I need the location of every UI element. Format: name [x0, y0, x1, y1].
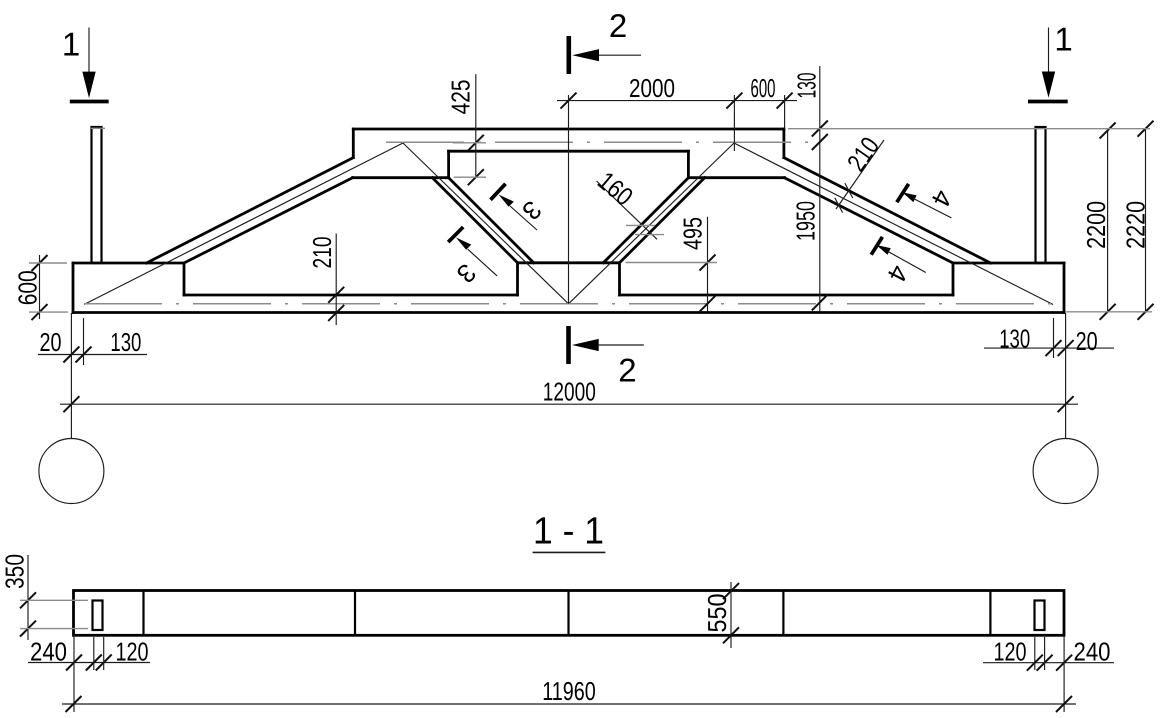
svg-text:120: 120 — [116, 637, 149, 667]
svg-text:550: 550 — [702, 594, 732, 633]
svg-text:130: 130 — [791, 73, 821, 99]
svg-text:1950: 1950 — [791, 201, 821, 241]
svg-text:2220: 2220 — [1121, 201, 1151, 249]
svg-text:20: 20 — [40, 327, 62, 357]
svg-text:210: 210 — [307, 237, 337, 269]
svg-text:120: 120 — [994, 637, 1027, 667]
svg-text:1: 1 — [1054, 21, 1072, 58]
svg-text:495: 495 — [678, 217, 708, 250]
svg-text:350: 350 — [0, 554, 29, 589]
svg-text:130: 130 — [999, 324, 1030, 354]
svg-text:600: 600 — [751, 73, 776, 103]
svg-text:2200: 2200 — [1081, 201, 1111, 249]
svg-text:130: 130 — [110, 327, 141, 357]
svg-text:12000: 12000 — [543, 376, 596, 406]
svg-text:240: 240 — [1074, 637, 1111, 667]
svg-text:20: 20 — [1076, 326, 1098, 356]
svg-text:2: 2 — [609, 7, 627, 44]
svg-text:425: 425 — [446, 79, 476, 114]
svg-text:240: 240 — [30, 637, 67, 667]
svg-text:1: 1 — [62, 25, 80, 62]
svg-text:600: 600 — [13, 270, 43, 305]
svg-text:1 - 1: 1 - 1 — [533, 511, 604, 553]
svg-text:2000: 2000 — [629, 73, 675, 103]
svg-text:11960: 11960 — [542, 676, 596, 706]
svg-text:2: 2 — [618, 352, 636, 389]
